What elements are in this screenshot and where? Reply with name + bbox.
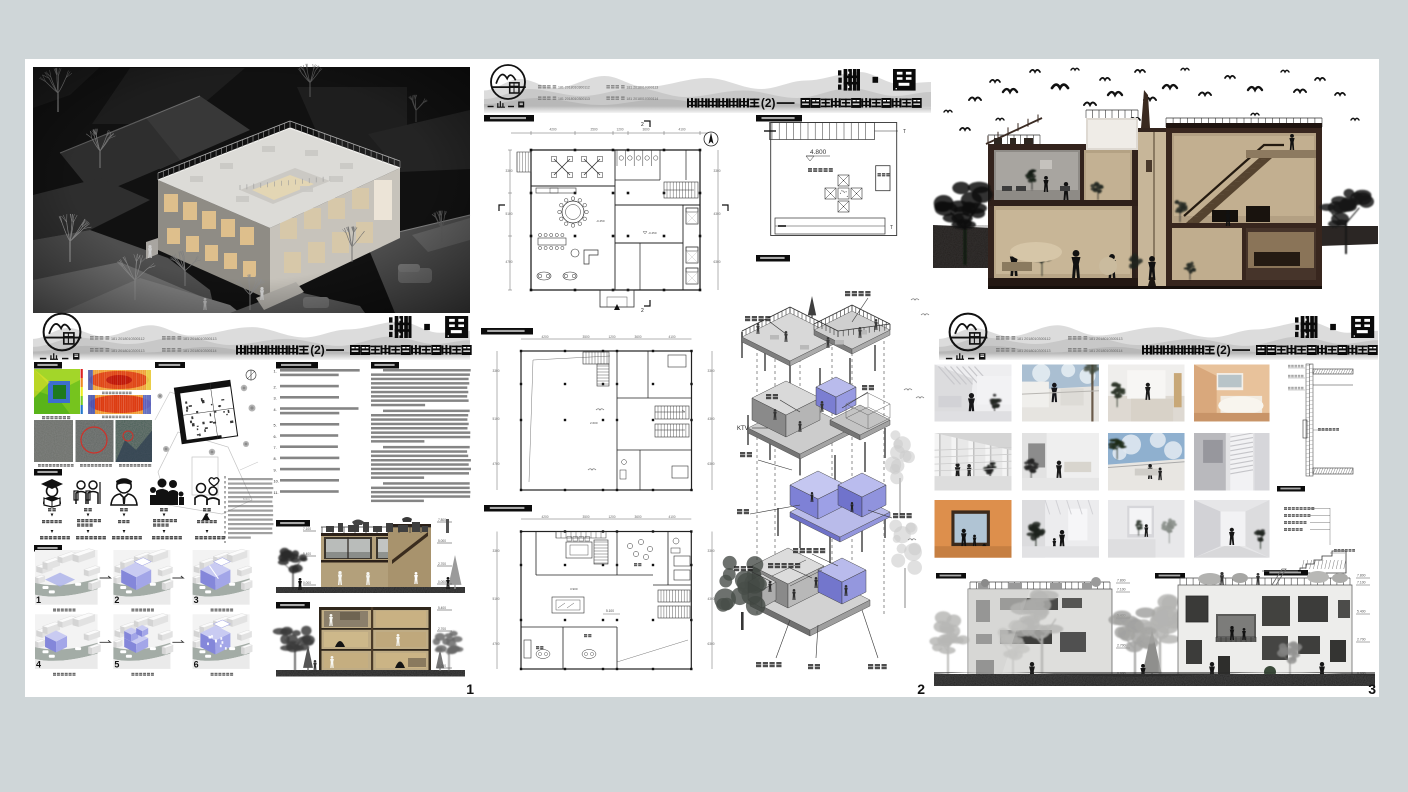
svg-text:4300: 4300 bbox=[713, 212, 720, 216]
svg-text:5.400: 5.400 bbox=[1357, 610, 1366, 614]
svg-text:7.100: 7.100 bbox=[303, 527, 311, 531]
svg-text:4.800: 4.800 bbox=[810, 149, 827, 156]
svg-text:181 2018010300112: 181 2018010300112 bbox=[1017, 337, 1051, 341]
svg-text:3600: 3600 bbox=[642, 128, 649, 132]
svg-text:8.: 8. bbox=[274, 457, 277, 461]
svg-text:181 2018010300112: 181 2018010300112 bbox=[558, 86, 590, 90]
svg-text:-0.450: -0.450 bbox=[596, 219, 605, 223]
svg-text:6: 6 bbox=[194, 659, 199, 669]
svg-text:7.: 7. bbox=[274, 446, 277, 450]
svg-text:4100: 4100 bbox=[668, 515, 675, 519]
svg-text:4200: 4200 bbox=[541, 335, 548, 339]
svg-text:4100: 4100 bbox=[668, 335, 675, 339]
svg-text:2.600: 2.600 bbox=[590, 421, 598, 425]
svg-text:T: T bbox=[903, 129, 906, 135]
svg-text:-0.450: -0.450 bbox=[648, 231, 657, 235]
svg-text:7.800: 7.800 bbox=[438, 518, 446, 522]
svg-text:5100: 5100 bbox=[505, 212, 512, 216]
svg-text:4200: 4200 bbox=[549, 128, 556, 132]
svg-text:1: 1 bbox=[36, 595, 41, 605]
svg-text:10.: 10. bbox=[274, 480, 279, 484]
svg-text:2: 2 bbox=[114, 595, 119, 605]
svg-text:4.: 4. bbox=[274, 408, 277, 412]
svg-text:9.: 9. bbox=[274, 468, 277, 472]
svg-text:2.700: 2.700 bbox=[1357, 638, 1366, 642]
svg-text:3.900: 3.900 bbox=[570, 587, 578, 591]
svg-text:2: 2 bbox=[641, 122, 644, 128]
svg-text:2.700: 2.700 bbox=[1117, 644, 1126, 648]
svg-text:2.: 2. bbox=[274, 385, 277, 389]
svg-text:3500: 3500 bbox=[582, 515, 589, 519]
svg-text:4700: 4700 bbox=[492, 642, 499, 646]
svg-text:5.400: 5.400 bbox=[303, 552, 311, 556]
svg-text:181 2018010300113: 181 2018010300113 bbox=[183, 337, 217, 341]
svg-text:5.000: 5.000 bbox=[438, 539, 446, 543]
svg-text:5.100: 5.100 bbox=[606, 609, 614, 613]
svg-text:5.: 5. bbox=[274, 424, 277, 428]
svg-text:3.: 3. bbox=[274, 397, 277, 401]
svg-text:5.400: 5.400 bbox=[438, 606, 446, 610]
svg-text:181 2018010300113: 181 2018010300113 bbox=[1089, 337, 1123, 341]
svg-text:1: 1 bbox=[466, 681, 474, 697]
svg-text:(2): (2) bbox=[761, 96, 776, 110]
svg-text:3300: 3300 bbox=[707, 549, 714, 553]
svg-text:4200: 4200 bbox=[541, 515, 548, 519]
svg-text:3: 3 bbox=[194, 595, 199, 605]
svg-text:3300: 3300 bbox=[707, 369, 714, 373]
svg-text:181 2018010300112: 181 2018010300112 bbox=[111, 337, 145, 341]
svg-text:0.000: 0.000 bbox=[438, 664, 446, 668]
svg-text:KTV: KTV bbox=[737, 426, 749, 432]
svg-text:181 2018010300114: 181 2018010300114 bbox=[183, 349, 217, 353]
svg-text:1.: 1. bbox=[274, 370, 277, 374]
svg-text:0.000: 0.000 bbox=[303, 581, 311, 585]
svg-text:3600: 3600 bbox=[634, 515, 641, 519]
svg-text:181 2018010300114: 181 2018010300114 bbox=[1089, 349, 1123, 353]
svg-text:6300: 6300 bbox=[707, 642, 714, 646]
svg-text:2.700: 2.700 bbox=[438, 627, 446, 631]
svg-text:4300: 4300 bbox=[707, 597, 714, 601]
svg-text:1200: 1200 bbox=[616, 128, 623, 132]
svg-text:4100: 4100 bbox=[678, 128, 685, 132]
svg-text:6300: 6300 bbox=[707, 462, 714, 466]
svg-text:7.100: 7.100 bbox=[1357, 581, 1366, 585]
svg-text:5100: 5100 bbox=[492, 417, 499, 421]
svg-text:181 2018010300114: 181 2018010300114 bbox=[626, 97, 658, 101]
svg-text:1200: 1200 bbox=[608, 515, 615, 519]
svg-text:6300: 6300 bbox=[713, 260, 720, 264]
svg-text:T: T bbox=[890, 225, 893, 231]
svg-text:4700: 4700 bbox=[492, 462, 499, 466]
svg-text:3600: 3600 bbox=[634, 335, 641, 339]
svg-text:7.800: 7.800 bbox=[1117, 579, 1126, 583]
svg-text:3300: 3300 bbox=[505, 169, 512, 173]
svg-text:(2): (2) bbox=[310, 343, 325, 357]
svg-text:2500: 2500 bbox=[590, 128, 597, 132]
svg-text:3: 3 bbox=[1368, 681, 1376, 697]
svg-text:4: 4 bbox=[36, 659, 41, 669]
svg-text:2: 2 bbox=[917, 681, 925, 697]
svg-text:5: 5 bbox=[114, 659, 119, 669]
svg-text:7.100: 7.100 bbox=[1117, 588, 1126, 592]
svg-text:181 2018010300113: 181 2018010300113 bbox=[626, 86, 658, 90]
svg-text:6.: 6. bbox=[274, 435, 277, 439]
svg-text:3300: 3300 bbox=[713, 169, 720, 173]
svg-text:181 2018010300113: 181 2018010300113 bbox=[111, 349, 145, 353]
svg-text:7.800: 7.800 bbox=[1357, 574, 1366, 578]
svg-text:3300: 3300 bbox=[492, 549, 499, 553]
svg-text:5100: 5100 bbox=[492, 597, 499, 601]
svg-text:181 2018010300113: 181 2018010300113 bbox=[558, 97, 590, 101]
svg-text:11.: 11. bbox=[274, 491, 279, 495]
svg-text:1200: 1200 bbox=[608, 335, 615, 339]
svg-text:(2): (2) bbox=[1216, 343, 1231, 357]
svg-text:3300: 3300 bbox=[492, 369, 499, 373]
svg-text:4300: 4300 bbox=[707, 417, 714, 421]
svg-text:3500: 3500 bbox=[582, 335, 589, 339]
svg-text:0.000: 0.000 bbox=[438, 580, 446, 584]
svg-text:2.700: 2.700 bbox=[438, 562, 446, 566]
svg-text:181 2018010300113: 181 2018010300113 bbox=[1017, 349, 1051, 353]
svg-text:4700: 4700 bbox=[505, 260, 512, 264]
svg-text:2: 2 bbox=[641, 308, 644, 314]
